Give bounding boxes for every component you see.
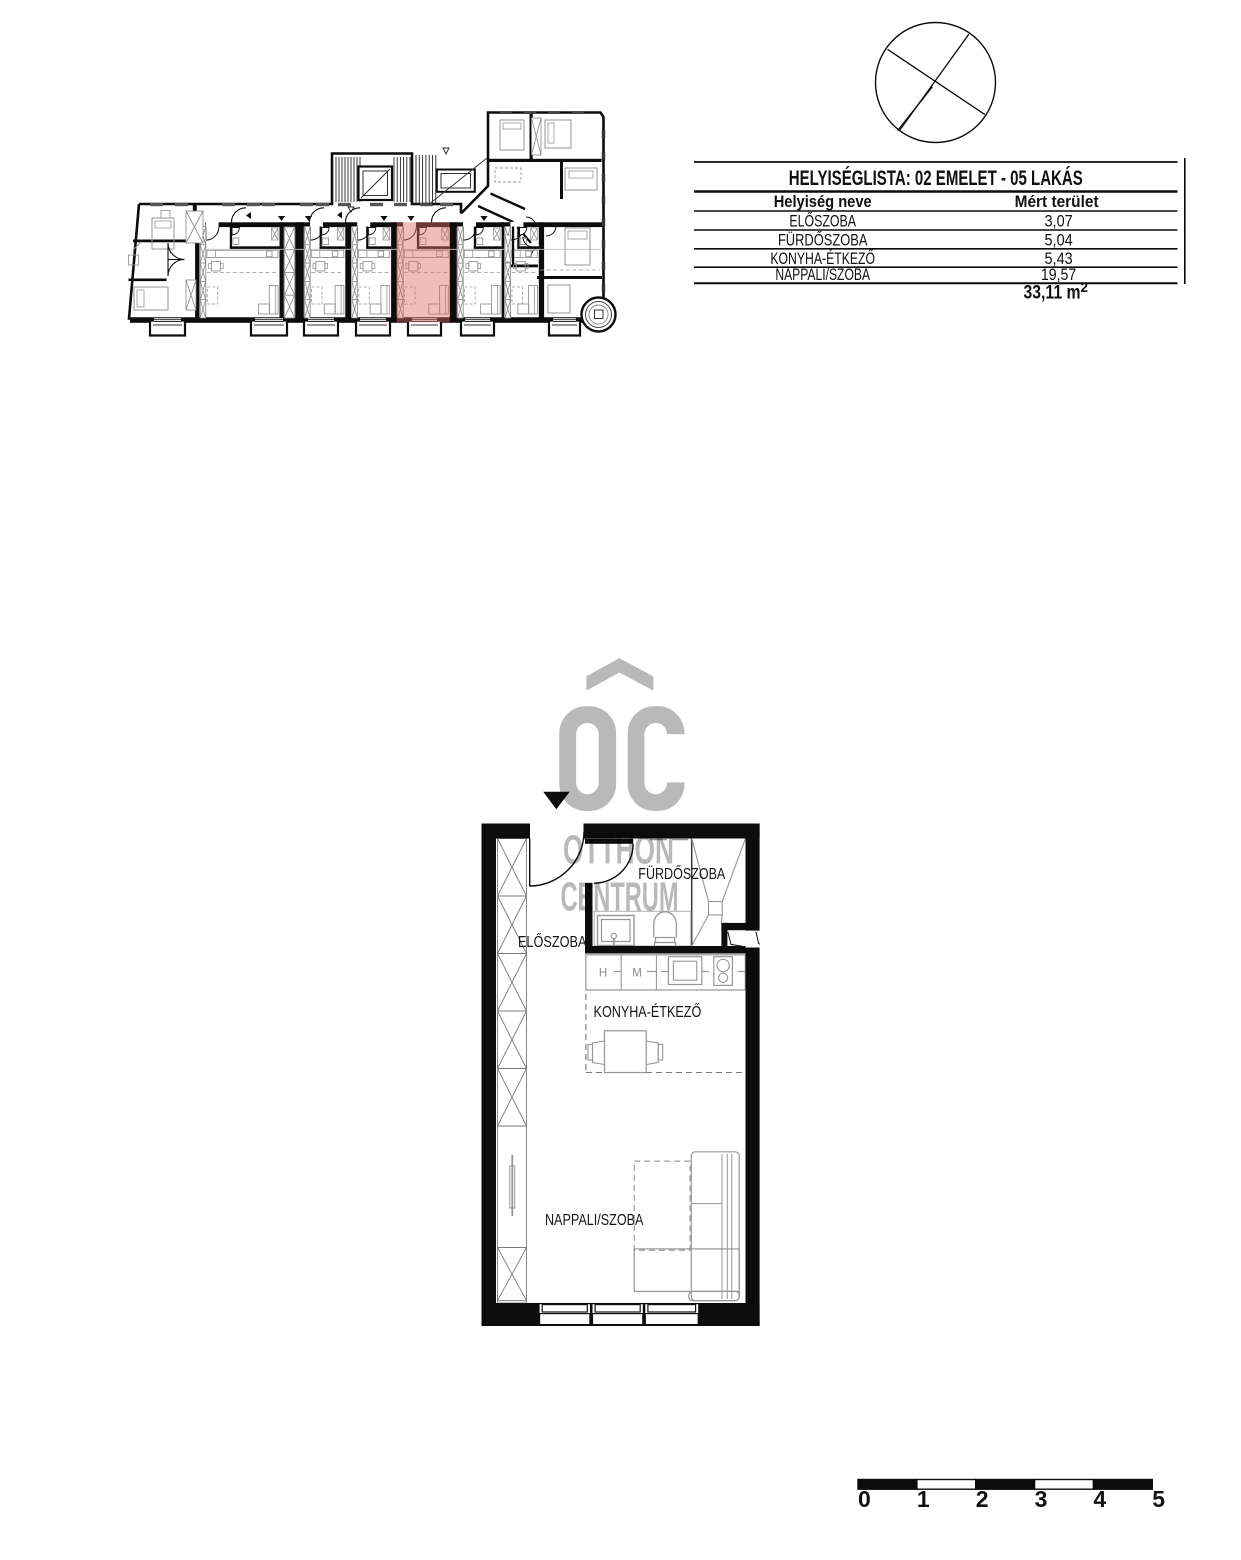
svg-text:ELŐSZOBA: ELŐSZOBA bbox=[789, 211, 856, 230]
svg-text:CENTRUM: CENTRUM bbox=[561, 874, 679, 920]
svg-text:Helyiség neve: Helyiség neve bbox=[774, 192, 872, 211]
svg-text:OTTHON: OTTHON bbox=[563, 827, 674, 873]
svg-text:33,11 m: 33,11 m bbox=[1024, 282, 1081, 304]
svg-text:FÜRDŐSZOBA: FÜRDŐSZOBA bbox=[778, 230, 868, 249]
svg-text:HELYISÉGLISTA: 02 EMELET - 05: HELYISÉGLISTA: 02 EMELET - 05 LAKÁS bbox=[789, 165, 1083, 190]
svg-text:H: H bbox=[599, 968, 607, 980]
svg-text:NAPPALI/SZOBA: NAPPALI/SZOBA bbox=[545, 1212, 644, 1229]
svg-text:3: 3 bbox=[1035, 1486, 1048, 1512]
svg-text:ELŐSZOBA: ELŐSZOBA bbox=[518, 934, 587, 951]
svg-text:KONYHA-ÉTKEZŐ: KONYHA-ÉTKEZŐ bbox=[594, 1004, 702, 1021]
svg-text:NAPPALI/SZOBA: NAPPALI/SZOBA bbox=[775, 266, 870, 284]
svg-text:1: 1 bbox=[917, 1486, 930, 1512]
svg-text:5,04: 5,04 bbox=[1045, 231, 1073, 249]
svg-text:M: M bbox=[632, 968, 642, 980]
svg-text:Mért terület: Mért terület bbox=[1015, 192, 1099, 211]
svg-text:2: 2 bbox=[976, 1486, 989, 1512]
svg-text:0: 0 bbox=[858, 1486, 871, 1512]
svg-text:4: 4 bbox=[1093, 1486, 1106, 1512]
svg-text:2: 2 bbox=[1081, 280, 1089, 295]
svg-text:3,07: 3,07 bbox=[1045, 212, 1073, 230]
svg-text:5: 5 bbox=[1152, 1486, 1165, 1512]
